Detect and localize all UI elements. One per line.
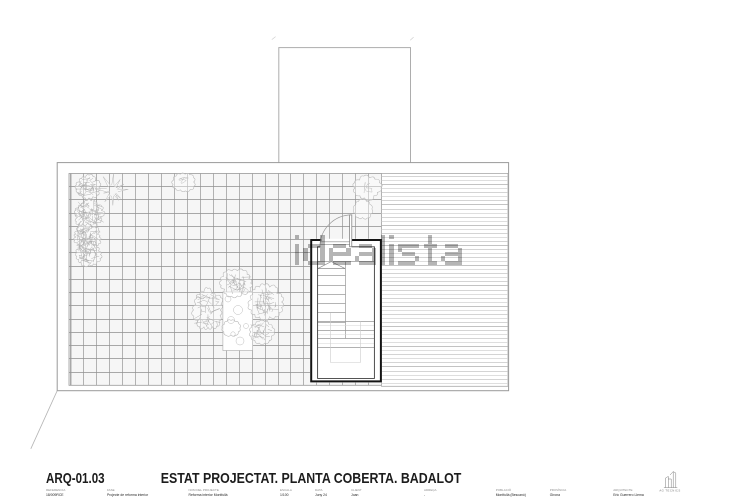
svg-text:DATA: DATA [315,488,323,492]
svg-text:ARQ-01.03: ARQ-01.03 [46,470,105,487]
svg-text:Joan: Joan [351,493,358,497]
svg-text:ARQUITECTE: ARQUITECTE [613,488,632,492]
svg-text:18/009RCE: 18/009RCE [46,493,64,497]
svg-text:FASE: FASE [107,488,115,492]
svg-text:ESTAT PROJECTAT. PLANTA COBERT: ESTAT PROJECTAT. PLANTA COBERTA. BADALOT [161,470,462,487]
svg-text:NOM DEL PROJECTE: NOM DEL PROJECTE [189,488,219,492]
svg-text:Montfullà (Bescanó): Montfullà (Bescanó) [496,493,526,497]
svg-text:PROVÍNCIA: PROVÍNCIA [550,488,567,492]
svg-text:Girona: Girona [550,493,560,497]
svg-text:REFERENCIA: REFERENCIA [46,488,65,492]
svg-text:-: - [424,493,425,497]
svg-text:1/100: 1/100 [280,493,289,497]
svg-text:CLIENT: CLIENT [351,488,362,492]
svg-text:Juny 24: Juny 24 [315,493,327,497]
svg-text:Reforma interior Montfullà: Reforma interior Montfullà [189,493,228,497]
svg-text:Eric Guerrero Llema: Eric Guerrero Llema [613,493,644,497]
svg-text:ESCALA: ESCALA [280,488,292,492]
svg-text:POBLACIÓ: POBLACIÓ [496,487,512,492]
svg-text:AG TECNICS: AG TECNICS [659,488,680,492]
svg-text:ADREÇA: ADREÇA [424,488,437,492]
svg-text:Projecte de reforma interior: Projecte de reforma interior [107,493,149,497]
